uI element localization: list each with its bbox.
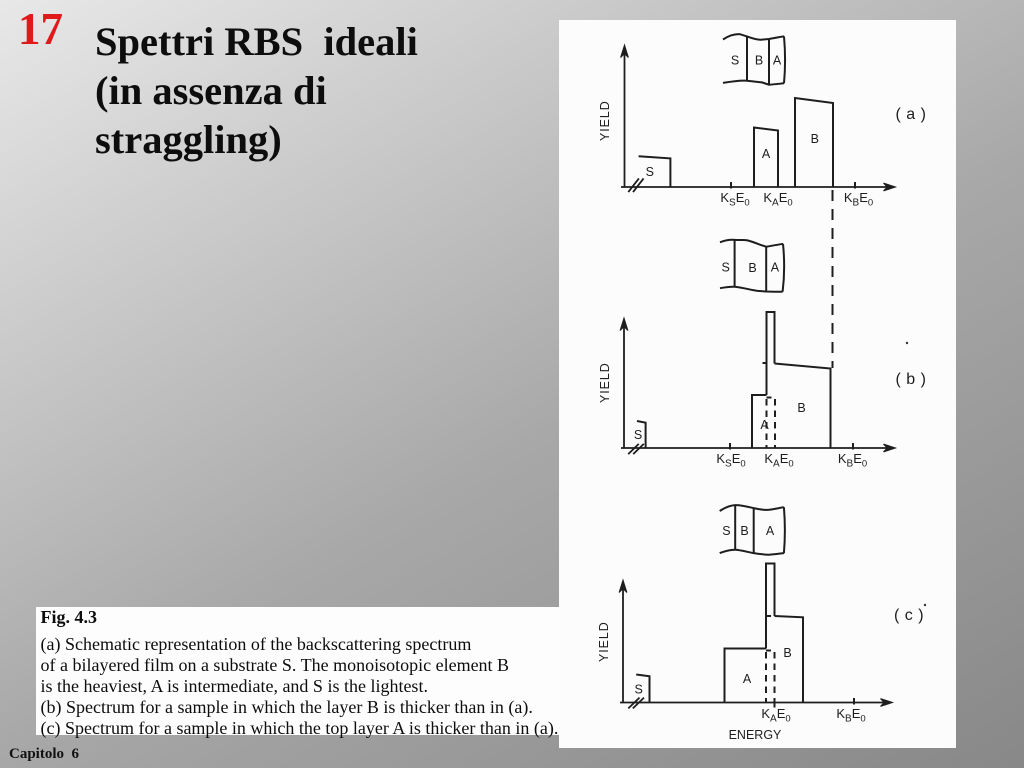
svg-text:S: S xyxy=(722,261,730,275)
svg-text:A: A xyxy=(760,418,769,432)
svg-text:S: S xyxy=(635,683,643,697)
svg-text:KSE0: KSE0 xyxy=(720,190,749,209)
svg-text:B: B xyxy=(797,401,805,415)
svg-text:( b ): ( b ) xyxy=(896,371,927,388)
svg-text:KSE0: KSE0 xyxy=(716,451,745,470)
svg-text:KBE0: KBE0 xyxy=(838,451,867,470)
svg-text:A: A xyxy=(771,261,780,275)
svg-text:YIELD: YIELD xyxy=(598,362,612,403)
svg-text:KBE0: KBE0 xyxy=(844,190,873,209)
svg-text:KAE0: KAE0 xyxy=(764,451,793,470)
svg-text:B: B xyxy=(748,261,756,275)
svg-text:YIELD: YIELD xyxy=(598,100,612,141)
svg-text:S: S xyxy=(731,53,739,67)
svg-text:ENERGY: ENERGY xyxy=(729,728,782,742)
svg-text:A: A xyxy=(762,147,771,161)
svg-text:KBE0: KBE0 xyxy=(836,706,865,725)
svg-text:A: A xyxy=(766,524,775,538)
svg-text:B: B xyxy=(740,524,748,538)
svg-text:KAE0: KAE0 xyxy=(763,190,792,209)
svg-text:A: A xyxy=(743,672,752,686)
svg-text:( a ): ( a ) xyxy=(896,106,927,123)
svg-text:S: S xyxy=(634,428,642,442)
svg-text:B: B xyxy=(783,646,791,660)
svg-text:S: S xyxy=(722,524,730,538)
svg-text:A: A xyxy=(773,54,782,68)
svg-text:( c ): ( c ) xyxy=(894,607,924,624)
svg-text:B: B xyxy=(811,132,819,146)
svg-text:S: S xyxy=(646,165,654,179)
svg-text:YIELD: YIELD xyxy=(597,621,611,662)
svg-text:B: B xyxy=(755,54,763,68)
svg-text:KAE0: KAE0 xyxy=(761,706,790,725)
